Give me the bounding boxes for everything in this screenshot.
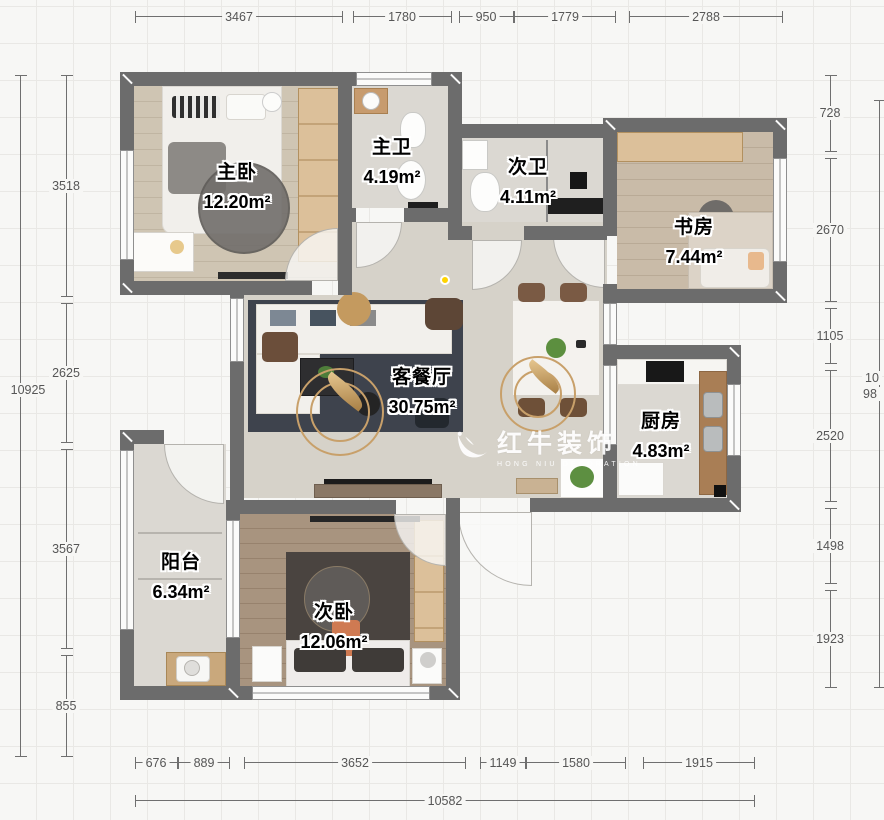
- stove-kitchen: [646, 361, 684, 382]
- dim-label: 889: [191, 756, 218, 770]
- dim-label: 3518: [49, 179, 83, 193]
- wall: [338, 208, 356, 222]
- wall: [448, 226, 472, 240]
- room-label-living-dining: 客餐厅 30.75m²: [388, 368, 455, 418]
- dim-label: 1105: [814, 329, 847, 343]
- balcony-rail-line: [138, 532, 222, 534]
- desk-master: [132, 232, 194, 272]
- room-name: 次卫: [500, 158, 556, 179]
- throw-brown: [262, 332, 298, 362]
- dim-label: 1780: [385, 10, 419, 24]
- tv-living: [324, 479, 432, 484]
- window-living-west: [230, 298, 244, 362]
- wall: [404, 208, 452, 222]
- watermark: 红牛装饰 HONG NIU DECORATION: [452, 424, 641, 468]
- bull-logo-icon: [452, 431, 490, 461]
- wall: [603, 498, 741, 512]
- dim-line-left-total: [20, 75, 21, 757]
- window-study: [773, 158, 787, 262]
- dim-label: 1779: [548, 10, 582, 24]
- room-name: 主卫: [363, 138, 420, 159]
- room-name: 书房: [665, 218, 722, 239]
- dim-label-left-total: 10925: [8, 383, 49, 397]
- window-dining-east: [603, 303, 617, 345]
- room-area: 4.19m²: [363, 168, 420, 188]
- sink-kitchen-2: [703, 426, 723, 452]
- wall: [603, 345, 617, 365]
- chair-dining: [560, 283, 587, 302]
- window-balcony-bedroom: [226, 520, 240, 638]
- dim-label: 2670: [813, 223, 847, 237]
- pillow-study: [748, 252, 764, 270]
- dim-label: 2625: [49, 366, 83, 380]
- wall: [448, 124, 607, 138]
- wall: [603, 289, 787, 303]
- desk-second-bath: [548, 198, 604, 214]
- dining-decor: [576, 340, 586, 348]
- marker-yellow-dot: [440, 275, 450, 285]
- watermark-text: 红牛装饰 HONG NIU DECORATION: [497, 424, 641, 468]
- watermark-subtitle: HONG NIU DECORATION: [497, 461, 641, 468]
- dim-label-clipped: 98: [860, 387, 880, 401]
- window-second-bedroom: [252, 686, 430, 700]
- dim-label: 676: [143, 756, 170, 770]
- room-area: 12.20m²: [203, 193, 270, 213]
- lamp-nightstand: [420, 652, 436, 668]
- chair-dining: [518, 283, 545, 302]
- dim-label: 3652: [338, 756, 372, 770]
- shoe-bench: [516, 478, 558, 494]
- wall: [603, 118, 787, 132]
- room-label-kitchen: 厨房 4.83m²: [632, 412, 689, 462]
- room-name: 客餐厅: [388, 368, 455, 389]
- room-name: 阳台: [152, 553, 209, 574]
- corner-box-kitchen: [714, 485, 726, 497]
- dim-label: 1580: [559, 756, 593, 770]
- desk-clock: [170, 240, 184, 254]
- dim-label: 3467: [222, 10, 256, 24]
- wall: [338, 72, 352, 295]
- dim-label: 855: [53, 699, 80, 713]
- wall: [603, 118, 617, 236]
- lamp-black: [570, 172, 587, 189]
- window-kitchen: [727, 384, 741, 456]
- wall: [120, 686, 230, 700]
- wall: [446, 500, 460, 700]
- plant-hall: [570, 466, 594, 488]
- plant-dining: [546, 338, 566, 358]
- cushion-blue: [270, 310, 296, 326]
- dim-label: 2520: [813, 429, 847, 443]
- wall: [530, 498, 605, 512]
- dim-label: 1923: [813, 632, 847, 646]
- room-name: 主卧: [203, 163, 270, 184]
- dim-label-bottom-total: 10582: [425, 794, 466, 808]
- sink-kitchen-1: [703, 392, 723, 418]
- cabinet-study: [617, 132, 743, 162]
- armchair-brown: [425, 298, 463, 330]
- room-area: 12.06m²: [300, 633, 367, 653]
- cushion-navy: [310, 310, 336, 326]
- sink-master-bath: [362, 92, 380, 110]
- sink-second-bath: [462, 140, 488, 170]
- room-label-master-bedroom: 主卧 12.20m²: [203, 163, 270, 213]
- room-area: 4.11m²: [500, 188, 556, 208]
- pillow-striped: [172, 96, 220, 118]
- wall: [603, 345, 741, 359]
- wall: [120, 281, 312, 295]
- pillow-white: [226, 94, 266, 120]
- floorplan-canvas: 主卧 12.20m² 主卫 4.19m² 次卫 4.11m² 书房 7.44m²…: [0, 0, 884, 820]
- dim-label: 1915: [682, 756, 716, 770]
- tv-console-living: [314, 484, 442, 498]
- room-area: 30.75m²: [388, 398, 455, 418]
- dim-label: 2788: [689, 10, 723, 24]
- dim-label-clipped: 10: [862, 371, 882, 385]
- dim-label: 1149: [487, 756, 520, 770]
- tv-master: [218, 272, 288, 279]
- dim-label: 728: [817, 106, 844, 120]
- room-label-master-bath: 主卫 4.19m²: [363, 138, 420, 188]
- window-master-bath: [356, 72, 432, 86]
- pendant-gold: [337, 292, 371, 326]
- room-label-balcony: 阳台 6.34m²: [152, 553, 209, 603]
- dim-label: 1498: [813, 539, 847, 553]
- room-area: 7.44m²: [665, 248, 722, 268]
- bedside-lamp: [262, 92, 282, 112]
- wall: [226, 500, 396, 514]
- wall: [524, 226, 607, 240]
- door-arc-entry: [458, 512, 532, 586]
- toilet-second-bath: [470, 172, 500, 212]
- room-name: 次卧: [300, 603, 367, 624]
- room-area: 6.34m²: [152, 583, 209, 603]
- room-name: 厨房: [632, 412, 689, 433]
- room-label-second-bath: 次卫 4.11m²: [500, 158, 556, 208]
- dim-label: 950: [473, 10, 500, 24]
- window-master-bedroom: [120, 150, 134, 260]
- room-area: 4.83m²: [632, 442, 689, 462]
- room-label-study: 书房 7.44m²: [665, 218, 722, 268]
- watermark-brand: 红牛装饰: [497, 424, 641, 460]
- room-label-second-bedroom: 次卧 12.06m²: [300, 603, 367, 653]
- nightstand-left: [252, 646, 282, 682]
- window-balcony: [120, 450, 134, 630]
- dim-label: 3567: [49, 542, 83, 556]
- washer-door: [184, 660, 200, 676]
